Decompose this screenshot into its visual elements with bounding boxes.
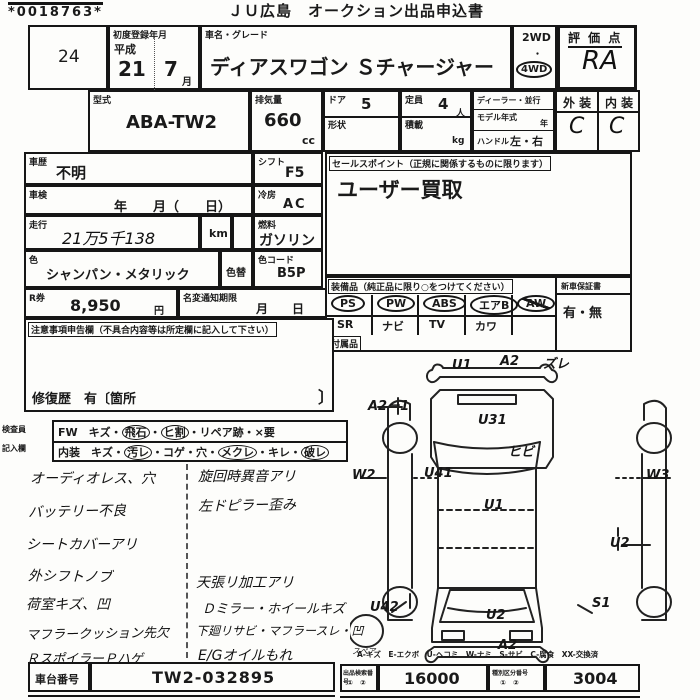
interior-label: 内 装 [605, 94, 633, 111]
note-turning-noise: 旋回時異音アリ [198, 466, 296, 486]
insp-r2-pre: 内装 キズ・ [58, 446, 124, 459]
color-code-label: 色コード [258, 253, 294, 266]
mileage-unit: km [209, 227, 228, 240]
door-shape-cell: ドア 5 形状 [323, 90, 400, 152]
drive-dot: ・ [533, 47, 542, 60]
damage-w3: W3 [646, 468, 669, 483]
shift-cell: シフト F5 [253, 152, 323, 185]
class-no-value-cell: 3004 [545, 664, 640, 692]
model-code-cell: 型式 ABA-TW2 [88, 90, 250, 152]
page-title: ＪＵ広島 オークション出品申込書 [228, 0, 484, 21]
history-cell: 車歴 不明 [24, 152, 253, 185]
lot-number: 24 [58, 47, 80, 67]
note-underbody: 下廻リサビ・マフラースレ・凹 [196, 622, 363, 639]
name-change-value: 月 日 [256, 300, 304, 317]
chassis-value: TW2-032895 [152, 668, 275, 687]
capacity-load-cell: 定員 4 人 積載 kg [400, 90, 472, 152]
search-no-sub: ① ② [347, 678, 366, 688]
insp-r1-pre: FW キズ・ [58, 426, 122, 439]
barcode-number: *0018763* [8, 2, 103, 20]
insp-r1-stonechip-circled: 飛石 [122, 425, 150, 440]
exterior-interior-cell: 外 装 内 装 C C [555, 90, 640, 152]
notes-column-divider [186, 464, 188, 658]
color-code-cell: 色コード B5P [253, 250, 323, 288]
front-grille [458, 395, 516, 404]
class-no-label-cell: 種別区分番号 ① ② [488, 664, 545, 692]
interior-grade: C [609, 114, 624, 139]
damage-legend: A-キズ E-エクボ U-ヘコミ W-ナミ S-サビ C-腐食 XX-交換済 [357, 649, 598, 660]
equip-pw-circled: PW [377, 295, 415, 312]
door-label: ドア [328, 93, 346, 106]
capacity-value: 4 [438, 95, 448, 113]
damage-u1-front: U1 [452, 358, 472, 373]
inspector-row2: 内装 キズ・汚レ・コゲ・穴・メクレ・キレ・破レ [58, 444, 329, 460]
equip-col1 [371, 295, 373, 335]
damage-u2-rear: U2 [486, 608, 506, 623]
first-registration-cell: 初度登録年月 平成 21 7 月 [108, 25, 200, 90]
color-change-label: 色替 [226, 264, 246, 279]
car-name-value: ディアスワゴン Ｓチャージャー [210, 51, 494, 80]
aircon-value: AC [283, 197, 307, 212]
model-code-value: ABA-TW2 [126, 112, 217, 133]
inspector-label1: 検査員 [2, 424, 26, 435]
equip-sr: SR [337, 318, 353, 331]
drive-4wd-circled: 4WD [516, 61, 552, 78]
handle-value: 左・右 [510, 133, 543, 149]
r-ticket-value: 8,950 [70, 296, 121, 315]
search-no-value: 16000 [404, 669, 460, 688]
exterior-grade: C [569, 114, 584, 139]
reg-month-unit: 月 [182, 73, 192, 88]
drive-type-cell: 2WD ・ 4WD [512, 25, 557, 90]
modelyear-unit: 年 [540, 118, 548, 129]
damage-u2-right: U2 [610, 536, 630, 551]
inspection-cell: 車検 年 月（ 日） [24, 185, 253, 215]
damage-w2: W2 [352, 468, 375, 483]
mileage-unit-cell: km [200, 215, 232, 250]
insp-r2-peel-circled: メクレ [218, 445, 257, 460]
mileage-empty-cell [232, 215, 253, 250]
load-unit: kg [452, 136, 464, 146]
inspection-label: 車検 [29, 188, 47, 201]
door-value: 5 [361, 95, 371, 113]
color-change-cell: 色替 [220, 250, 253, 288]
handle-label: ハンドル [477, 136, 509, 147]
equip-abs-circled: ABS [423, 295, 466, 312]
notice-box: 注意事項申告欄（不具合内容等は所定欄に記入して下さい） 修復歴 有〔箇所 〕 [24, 318, 334, 412]
first-registration-label: 初度登録年月 [113, 28, 167, 41]
modelyear-label: モデル年式 [477, 112, 517, 123]
chassis-label-cell: 車台番号 [28, 662, 90, 692]
dealer-cell: ディーラー・並行 モデル年式 年 ハンドル 左・右 [472, 90, 555, 152]
search-no-value-cell: 16000 [378, 664, 488, 692]
model-code-label: 型式 [93, 93, 111, 106]
fuel-cell: 燃料 ガソリン [253, 215, 323, 250]
mileage-label: 走行 [29, 218, 47, 231]
mileage-cell: 走行 21万5千138 [24, 215, 200, 250]
leader-s1 [578, 605, 592, 613]
equipment-box: 装備品（純正品に限り○をつけてください） 新車保証書 有・無 PS PW ABS… [325, 276, 632, 352]
inspector-box: FW キズ・飛石・ヒ割・リペア跡・×要 内装 キズ・汚レ・コゲ・穴・メクレ・キレ… [52, 420, 348, 462]
equip-leather: カワ [475, 318, 497, 334]
damage-s1: S1 [592, 596, 610, 611]
notice-label: 注意事項申告欄（不具合内容等は所定欄に記入して下さい） [28, 322, 277, 337]
inspection-value: 年 月（ 日） [114, 196, 231, 215]
damage-u31: U31 [478, 413, 507, 428]
chassis-label: 車台番号 [35, 671, 79, 687]
r-ticket-cell: R券 8,950 円 [24, 288, 178, 318]
note-mirror-wheel: Ｄミラー・ホイールキズ [202, 598, 345, 617]
warranty-value: 有・無 [563, 302, 602, 321]
score-cell: 評 価 点 RA [557, 25, 637, 90]
dealer-divider1 [474, 109, 553, 110]
extint-vdivider [597, 92, 599, 150]
inspector-row-divider [54, 441, 346, 443]
capacity-label: 定員 [405, 93, 423, 106]
equipment-warranty-divider [555, 278, 557, 350]
class-no-sub: ① ② [500, 678, 519, 688]
sales-point-label: セールスポイント（正規に関係するものに限ります） [329, 156, 551, 171]
dealer-label: ディーラー・並行 [477, 95, 540, 106]
era-label: 平成 [114, 41, 136, 57]
equipment-label: 装備品（純正品に限り○をつけてください） [328, 279, 513, 294]
damage-a2-front: A2 [500, 354, 519, 369]
drive-2wd: 2WD [522, 31, 551, 44]
car-name-label: 車名・グレード [205, 28, 268, 41]
shift-value: F5 [285, 165, 304, 181]
insp-r2-tear-circled: 破レ [301, 445, 329, 460]
name-change-cell: 名変通知期限 月 日 [178, 288, 334, 318]
equip-aw-crossed: AW [517, 295, 555, 312]
equip-tv: TV [429, 318, 445, 331]
reg-year: 21 [118, 57, 146, 81]
taillight-left [442, 631, 464, 640]
auction-sheet: *0018763* ＪＵ広島 オークション出品申込書 24 初度登録年月 平成 … [0, 0, 700, 700]
insp-r2-m2: ・キレ・ [257, 446, 301, 459]
front-fascia-outline [431, 390, 553, 468]
history-value: 不明 [56, 162, 86, 183]
aircon-cell: 冷房 AC [253, 185, 323, 215]
note-seatcover: シートカバーアリ [26, 534, 137, 554]
insp-r1-post: ・リペア跡・×要 [189, 426, 275, 439]
spare-tire-circle [350, 615, 383, 647]
warranty-hline [555, 293, 630, 295]
r-ticket-unit: 円 [154, 302, 164, 317]
sales-point-cell: セールスポイント（正規に関係するものに限ります） ユーザー買取 [325, 152, 632, 276]
repair-history-bracket: 〕 [318, 384, 334, 408]
repair-history-label: 修復歴 有〔箇所 [32, 388, 136, 407]
note-headliner: 天張リ加工アリ [196, 572, 294, 592]
damage-u42: U42 [370, 600, 399, 615]
note-battery: バッテリー不良 [28, 500, 126, 522]
inspector-label2: 記入欄 [2, 443, 26, 454]
damage-zure: ズレ [543, 353, 569, 372]
inspector-row1: FW キズ・飛石・ヒ割・リペア跡・×要 [58, 424, 275, 440]
shape-label: 形状 [328, 118, 346, 131]
note-muffler: マフラークッション先欠 [26, 622, 169, 643]
lot-number-cell: 24 [28, 25, 108, 90]
displacement-unit: cc [302, 134, 315, 147]
note-shiftknob: 外シフトノブ [28, 565, 112, 586]
class-no-value: 3004 [573, 669, 618, 688]
roof-outline [438, 468, 536, 588]
reg-month: 7 [164, 57, 178, 81]
damage-hibi: ヒビ [508, 441, 534, 460]
sales-point-value: ユーザー買取 [337, 174, 463, 204]
color-code-value: B5P [277, 266, 305, 281]
reg-divider [154, 37, 155, 90]
mileage-value: 21万5千138 [62, 225, 155, 249]
color-value: シャンパン・メタリック [46, 264, 190, 283]
note-cargo: 荷室キズ、凹 [26, 594, 110, 614]
class-no-label: 種別区分番号 [492, 668, 528, 677]
equip-col4 [511, 295, 513, 335]
insp-r2-m1: ・コゲ・穴・ [152, 446, 218, 459]
insp-r1-m1: ・ [150, 426, 161, 439]
search-no-label-cell: 出品検索番号 ① ② [340, 664, 378, 692]
insp-r1-crack-circled: ヒ割 [161, 425, 189, 440]
name-change-label: 名変通知期限 [183, 291, 237, 304]
damage-u1-roof: U1 [484, 498, 504, 513]
warranty-label: 新車保証書 [561, 281, 601, 292]
displacement-value: 660 [264, 110, 302, 131]
equip-ps-circled: PS [331, 295, 365, 312]
color-cell: 色 シャンパン・メタリック [24, 250, 220, 288]
load-label: 積載 [405, 118, 423, 131]
dealer-divider2 [474, 130, 553, 131]
shift-label: シフト [258, 155, 285, 168]
equip-col2 [417, 295, 419, 335]
cutoff-row-left [28, 695, 335, 697]
note-audio: オーディオレス、穴 [30, 468, 155, 488]
damage-a2-1: A2－1 [368, 395, 409, 414]
equip-col3 [464, 295, 466, 335]
r-ticket-label: R券 [29, 291, 45, 304]
exterior-label: 外 装 [563, 94, 591, 111]
chassis-value-cell: TW2-032895 [90, 662, 335, 692]
damage-u41: U41 [424, 466, 453, 481]
equip-navi: ナビ [382, 318, 404, 334]
displacement-label: 排気量 [255, 93, 282, 106]
cutoff-row-right [340, 696, 640, 698]
displacement-cell: 排気量 660 cc [250, 90, 323, 152]
insp-r2-dirt-circled: 汚レ [124, 445, 152, 460]
car-name-cell: 車名・グレード ディアスワゴン Ｓチャージャー [200, 25, 512, 90]
equip-row-divider [327, 315, 555, 317]
front-bumper-outline [427, 365, 557, 383]
color-label: 色 [29, 253, 38, 266]
aircon-label: 冷房 [258, 188, 276, 201]
fuel-value: ガソリン [259, 230, 315, 250]
score-value: RA [582, 46, 618, 76]
history-label: 車歴 [29, 155, 47, 168]
note-pillar: 左ドピラー歪み [198, 494, 296, 516]
